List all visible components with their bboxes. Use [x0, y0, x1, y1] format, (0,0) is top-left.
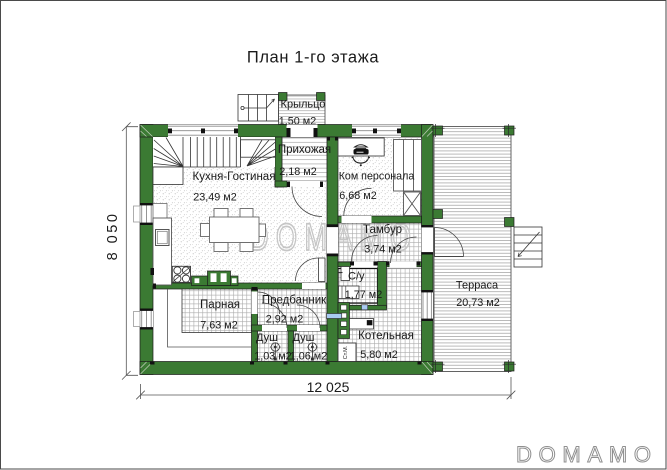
svg-text:1,50 м2: 1,50 м2 — [279, 116, 316, 128]
svg-text:2,18 м2: 2,18 м2 — [279, 166, 316, 178]
svg-text:Терраса: Терраса — [456, 280, 499, 292]
svg-text:6,68 м2: 6,68 м2 — [339, 190, 376, 202]
svg-text:Ст.М.: Ст.М. — [343, 345, 349, 359]
svg-text:Тамбур: Тамбур — [363, 224, 402, 236]
svg-text:20,73 м2: 20,73 м2 — [456, 297, 499, 309]
svg-text:1,06 м2: 1,06 м2 — [290, 351, 327, 363]
svg-text:3,74 м2: 3,74 м2 — [364, 244, 401, 256]
svg-text:Ком персонала: Ком персонала — [339, 171, 415, 183]
svg-text:5,80 м2: 5,80 м2 — [360, 349, 397, 361]
svg-text:Кухня-Гостиная: Кухня-Гостиная — [193, 171, 276, 183]
svg-text:Парная: Парная — [200, 299, 240, 311]
svg-text:Душ: Душ — [292, 332, 314, 344]
svg-text:12 025: 12 025 — [307, 379, 350, 395]
svg-text:1,77 м2: 1,77 м2 — [345, 289, 382, 301]
svg-text:Прихожая: Прихожая — [278, 144, 331, 156]
svg-text:Котельная: Котельная — [358, 330, 414, 342]
svg-text:7,63 м2: 7,63 м2 — [200, 320, 237, 332]
svg-text:23,49 м2: 23,49 м2 — [193, 192, 236, 204]
svg-text:Предбанник: Предбанник — [262, 295, 327, 307]
svg-text:Душ: Душ — [256, 332, 278, 344]
svg-text:С/у: С/у — [348, 271, 365, 283]
svg-text:Крыльцо: Крыльцо — [281, 99, 326, 111]
svg-text:План 1-го этажа: План 1-го этажа — [247, 49, 379, 67]
svg-text:2,92 м2: 2,92 м2 — [266, 314, 303, 326]
svg-text:8 050: 8 050 — [105, 212, 121, 261]
svg-text:1,03 м2: 1,03 м2 — [254, 351, 291, 363]
